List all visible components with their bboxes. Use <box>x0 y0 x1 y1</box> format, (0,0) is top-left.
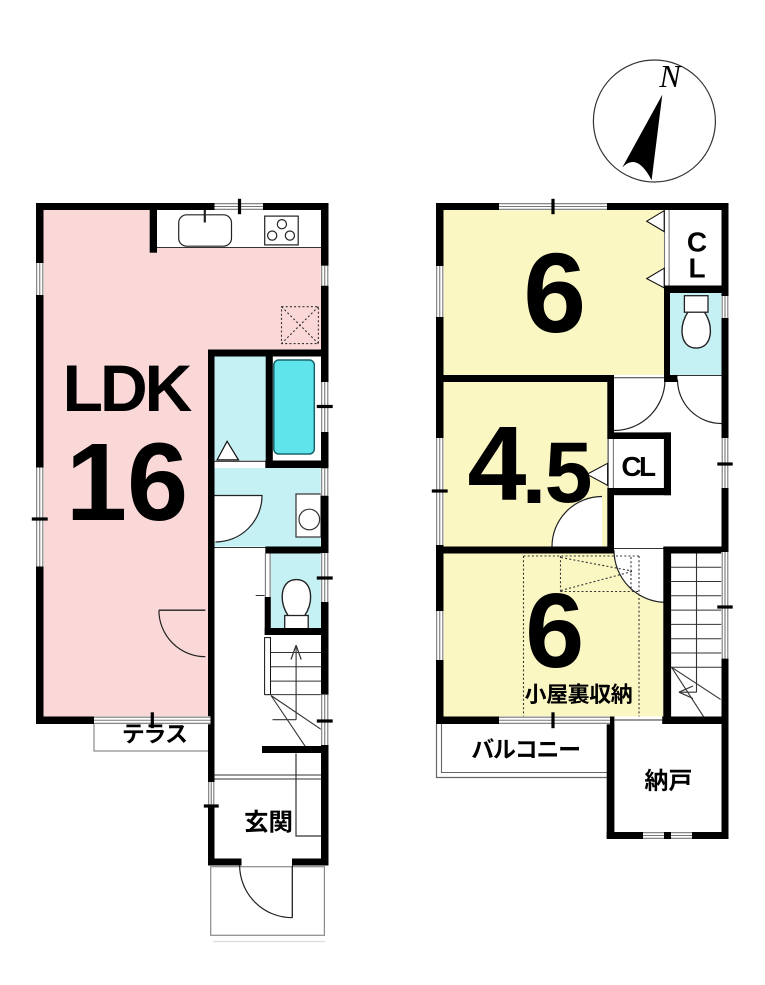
svg-text:N: N <box>658 58 682 94</box>
svg-text:6: 6 <box>525 572 584 690</box>
svg-text:.: . <box>521 423 546 523</box>
svg-text:5: 5 <box>545 425 593 521</box>
svg-text:6: 6 <box>523 230 586 356</box>
svg-text:4: 4 <box>468 405 527 523</box>
svg-text:L: L <box>688 253 705 284</box>
svg-text:16: 16 <box>66 421 188 544</box>
svg-text:LDK: LDK <box>63 351 193 425</box>
svg-text:CL: CL <box>621 451 656 482</box>
